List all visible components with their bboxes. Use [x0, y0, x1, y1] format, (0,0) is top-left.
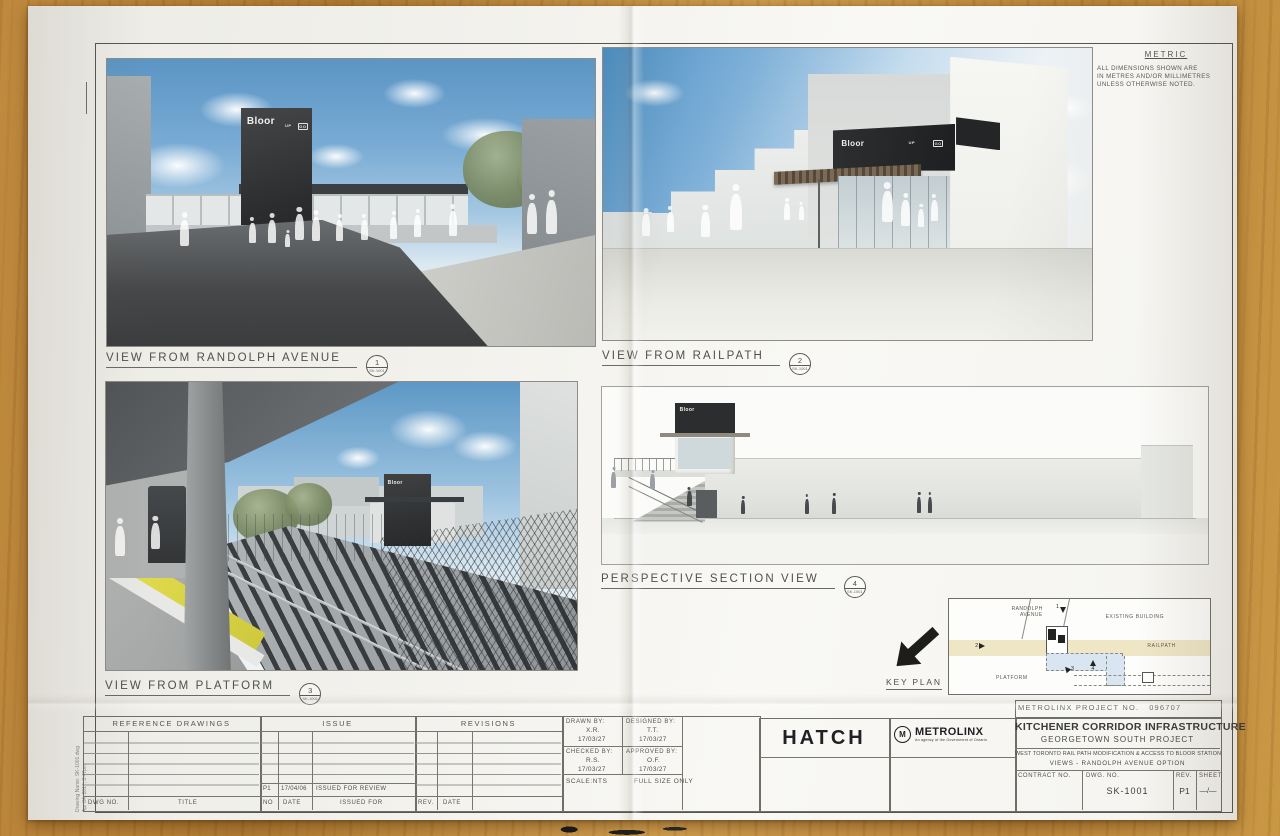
cloud	[371, 73, 459, 113]
person-silhouette	[390, 217, 397, 239]
person-silhouette	[414, 215, 421, 237]
table-line	[682, 716, 683, 810]
person-silhouette	[312, 217, 320, 241]
callout-sheet-ref: SK-1001	[790, 365, 810, 372]
existing-building-label: EXISTING BUILDING	[1106, 614, 1165, 620]
metrolinx-logo: M METROLINX An agency of the Government …	[894, 726, 1012, 743]
reference-drawings-header: REFERENCE DRAWINGS	[83, 719, 260, 728]
go-transit-logo: GO	[298, 123, 308, 130]
callout-sheet-ref: SK-1001	[367, 367, 387, 374]
marker-number: 1	[1056, 604, 1059, 610]
foreground-apron	[602, 534, 1208, 564]
approved-by-label: APPROVED BY:	[626, 749, 678, 755]
canopy-band	[365, 497, 464, 502]
station-sign-bloor: Bloor	[247, 116, 275, 127]
cloud	[327, 442, 388, 474]
designed-by-date: 17/03/27	[639, 736, 667, 743]
revisions-header: REVISIONS	[415, 719, 562, 728]
table-line	[562, 774, 682, 775]
person-silhouette	[546, 200, 557, 234]
checked-by-label: CHECKED BY:	[566, 749, 613, 755]
person-silhouette	[361, 220, 368, 240]
sheet-label: SHEET	[1199, 773, 1222, 779]
stair-doorway	[696, 490, 717, 518]
contract-no-label: CONTRACT NO.	[1018, 773, 1071, 779]
metric-line: UNLESS OTHERWISE NOTED.	[1097, 81, 1235, 89]
photo-of-drawing-sheet: Drawing Name: SK-1001.dwg Apr 04, 2017, …	[0, 0, 1280, 836]
person-silhouette	[180, 220, 189, 246]
table-line	[260, 796, 415, 797]
randolph-line2: AVENUE	[1020, 612, 1043, 618]
callout-sheet-ref: SK-1001	[845, 588, 865, 595]
keyplan-marker-4: 4	[1090, 660, 1096, 672]
designed-by-value: T.T.	[647, 727, 658, 734]
table-line	[278, 731, 279, 810]
view-callout-1: 1 SK-1001	[366, 355, 388, 377]
drawn-by-date: 17/03/27	[578, 736, 606, 743]
drawn-by-label: DRAWN BY:	[566, 719, 605, 725]
keyplan-marker-3: 3	[1064, 666, 1074, 672]
drawing-desc-1: WEST TORONTO RAIL PATH MODIFICATION & AC…	[1015, 751, 1220, 757]
issue-col-no: NO	[263, 800, 273, 806]
metrolinx-wordmark: METROLINX	[915, 727, 987, 738]
station-core	[1048, 629, 1056, 641]
person-silhouette	[527, 203, 537, 234]
platform-dashed-line	[1074, 685, 1210, 686]
view-callout-4: 4 SK-1001	[844, 576, 866, 598]
designed-by-label: DESIGNED BY:	[626, 719, 676, 725]
table-rules	[261, 733, 414, 783]
dwg-no-label: DWG. NO.	[1086, 773, 1119, 779]
render-perspective-section: Bloor	[601, 386, 1209, 565]
table-line	[260, 731, 415, 732]
table-line	[128, 731, 129, 810]
table-line	[1015, 770, 1220, 771]
table-line	[437, 731, 438, 810]
person-silhouette	[115, 526, 125, 556]
station-footprint	[1046, 626, 1069, 655]
table-line	[622, 716, 623, 774]
view-title-text: VIEW FROM RANDOLPH AVENUE	[106, 352, 357, 368]
dwg-no-value: SK-1001	[1082, 786, 1173, 796]
keyplan-marker-2: 2	[975, 643, 985, 649]
table-line	[415, 796, 562, 797]
view-title-4: PERSPECTIVE SECTION VIEW 4 SK-1001	[601, 573, 866, 598]
station-sign-band: Bloor	[675, 403, 736, 435]
station-sign-bloor: Bloor	[388, 480, 403, 486]
railpath-label: RAILPATH	[1147, 643, 1176, 649]
person-silhouette	[285, 234, 290, 247]
drawn-by-value: X.R.	[586, 727, 600, 734]
randolph-avenue-label: RANDOLPH AVENUE	[1012, 606, 1043, 618]
view-title-3: VIEW FROM PLATFORM 3 SK-1001	[105, 680, 321, 705]
table-line	[83, 731, 260, 732]
view-title-1: VIEW FROM RANDOLPH AVENUE 1 SK-1001	[106, 352, 388, 377]
project-subtitle: GEORGETOWN SOUTH PROJECT	[1015, 735, 1220, 744]
plot-stamp-line: Drawing Name: SK-1001.dwg	[75, 686, 81, 812]
metrolinx-tagline: An agency of the Government of Ontario	[915, 738, 987, 742]
table-line	[83, 796, 260, 797]
full-size-label: FULL SIZE ONLY	[634, 778, 693, 785]
approved-by-value: O.F.	[647, 757, 660, 764]
building-left	[107, 76, 151, 254]
table-line	[472, 731, 473, 810]
drawing-desc-2: VIEWS - RANDOLPH AVENUE OPTION	[1015, 760, 1220, 767]
render-view-platform: Bloor	[105, 381, 578, 671]
checked-by-value: R.S.	[586, 757, 600, 764]
person-silhouette	[928, 497, 932, 513]
view-title-text: VIEW FROM PLATFORM	[105, 680, 290, 696]
person-silhouette	[249, 223, 256, 243]
view-callout-2: 2 SK-1001	[789, 353, 811, 375]
person-silhouette	[805, 499, 809, 514]
marker-number: 2	[975, 643, 978, 649]
fence-mid	[228, 514, 388, 560]
render-view-randolph-avenue: Bloor UP GO	[106, 58, 596, 347]
issue-row-for: ISSUED FOR REVIEW	[316, 786, 387, 792]
stairs	[632, 481, 705, 522]
sheet-value: —/—	[1196, 786, 1220, 795]
person-silhouette	[611, 472, 616, 488]
table-line	[260, 783, 415, 784]
key-plan: RAILPATH EXISTING BUILDING RANDOLPH AVEN…	[948, 598, 1211, 695]
callout-number: 2	[798, 357, 802, 365]
ref-col-title: TITLE	[178, 800, 197, 806]
wall-end-block	[1141, 445, 1193, 520]
render-view-railpath: Bloor UP GO	[602, 47, 1093, 341]
photo-shading-overlay	[603, 48, 1092, 340]
access-path	[1106, 656, 1125, 686]
person-silhouette	[295, 214, 304, 240]
marker-arrow-icon	[1063, 664, 1071, 672]
callout-sheet-ref: SK-1001	[300, 695, 320, 702]
person-silhouette	[917, 497, 921, 513]
wood-marking	[550, 823, 710, 836]
table-rules	[84, 733, 259, 795]
rev-label: REV.	[1176, 773, 1192, 779]
issue-row-no: P1	[263, 786, 271, 792]
station-core	[1058, 635, 1065, 643]
issue-col-for: ISSUED FOR	[340, 800, 383, 806]
rev-col-date: DATE	[443, 800, 461, 806]
issue-row-date: 17/04/06	[281, 786, 307, 792]
view-callout-3: 3 SK-1001	[299, 683, 321, 705]
person-silhouette	[151, 523, 160, 549]
platform-label: PLATFORM	[996, 675, 1028, 681]
callout-number: 1	[375, 359, 379, 367]
retaining-wall	[705, 458, 1166, 521]
table-line	[1015, 748, 1220, 749]
approved-by-date: 17/03/27	[639, 766, 667, 773]
project-title: KITCHENER CORRIDOR INFRASTRUCTURE	[1015, 721, 1220, 733]
marker-arrow-icon	[1060, 607, 1066, 613]
table-line	[759, 757, 889, 758]
cloud	[440, 425, 529, 468]
person-silhouette	[449, 211, 457, 236]
metrolinx-m-icon: M	[894, 726, 911, 743]
up-express-logo: UP	[285, 123, 292, 128]
rev-col-rev: REV.	[418, 800, 434, 806]
canopy	[660, 433, 751, 437]
callout-number: 4	[853, 580, 857, 588]
person-silhouette	[268, 220, 276, 243]
marker-arrow-icon	[979, 643, 985, 649]
metric-note: METRIC ALL DIMENSIONS SHOWN ARE IN METRE…	[1097, 50, 1235, 89]
station-tower: Bloor	[675, 403, 736, 474]
margin-tick-mark	[86, 82, 87, 114]
view-title-text: PERSPECTIVE SECTION VIEW	[601, 573, 835, 589]
issue-col-date: DATE	[283, 800, 301, 806]
checked-by-date: 17/03/27	[578, 766, 606, 773]
person-silhouette	[687, 491, 692, 506]
station-sign-bloor: Bloor	[680, 407, 695, 413]
metric-line: ALL DIMENSIONS SHOWN ARE	[1097, 65, 1235, 73]
metric-title: METRIC	[1097, 50, 1235, 59]
shelter-square	[1142, 672, 1154, 683]
metric-line: IN METRES AND/OR MILLIMETRES	[1097, 73, 1235, 81]
marker-number: 4	[1091, 666, 1094, 672]
table-line	[312, 731, 313, 810]
rev-value: P1	[1173, 786, 1196, 796]
glass-band	[678, 438, 731, 469]
callout-number: 3	[308, 687, 312, 695]
keyplan-marker-1: 1	[1056, 602, 1066, 613]
hatch-logo: HATCH	[759, 727, 889, 750]
table-line	[562, 746, 682, 747]
view-title-text: VIEW FROM RAILPATH	[602, 350, 780, 366]
key-plan-label: KEY PLAN	[886, 677, 942, 690]
issue-header: ISSUE	[260, 719, 415, 728]
table-line	[889, 757, 1015, 758]
ref-col-dwg: DWG NO.	[88, 800, 119, 806]
scale-label: SCALE:NTS	[566, 778, 608, 785]
view-title-2: VIEW FROM RAILPATH 2 SK-1001	[602, 350, 811, 375]
